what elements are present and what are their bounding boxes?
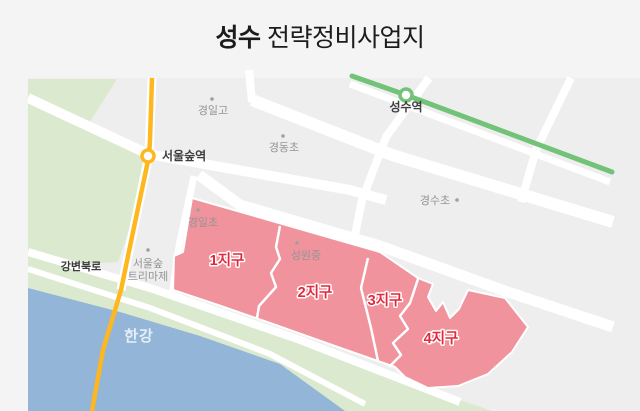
label-sungwon-middle: 성원중 (291, 249, 321, 262)
dot-kyungil-high (210, 97, 214, 101)
title-rest: 전략정비사업지 (267, 24, 425, 52)
page: { "title": { "highlight": "성수", "rest": … (0, 0, 640, 411)
dot-kyungsu-elem (455, 198, 459, 202)
label-seoulsup-station: 서울숲역 (162, 148, 206, 163)
label-seongsu-station: 성수역 (389, 99, 422, 114)
road-vertical-north (249, 70, 252, 102)
label-han-river: 한강 (124, 327, 154, 345)
page-title: 성수 전략정비사업지 (0, 18, 640, 54)
title-highlight: 성수 (216, 24, 261, 52)
seoulsup-station-marker (142, 150, 154, 162)
label-gangbyeon-expressway: 강변북로 (61, 259, 101, 273)
seongsu-map: 경일고 경동초 경수초 경일초 성원중 서울숲 트리마제 서울숲역 성수역 강변… (28, 70, 640, 411)
label-kyungdong-elem: 경동초 (269, 141, 299, 154)
label-kyungsu-elem: 경수초 (420, 194, 450, 207)
dot-trimaje (146, 248, 150, 252)
label-kyungil-elem: 경일초 (188, 215, 218, 229)
label-kyungil-high: 경일고 (198, 103, 228, 117)
label-district-3: 3지구 (368, 292, 403, 309)
label-district-2: 2지구 (298, 284, 333, 301)
label-district-1: 1지구 (210, 252, 245, 269)
dot-sungwon-middle (295, 241, 299, 245)
label-district-4: 4지구 (424, 330, 459, 347)
dot-kyungil-elem (196, 208, 200, 212)
label-seoulsup-poi: 서울숲 (133, 257, 163, 270)
dot-kyungdong-elem (281, 134, 285, 138)
label-trimaje-poi: 트리마제 (128, 270, 168, 283)
